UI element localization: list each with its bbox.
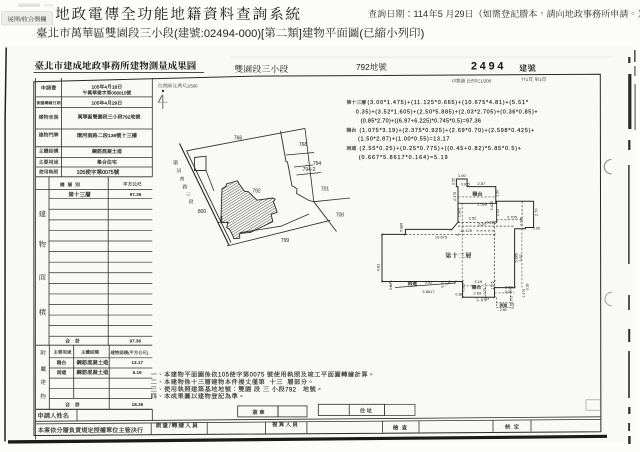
svg-text:800: 800 — [198, 209, 207, 215]
svg-text:1/500: 1/500 — [187, 83, 198, 88]
svg-text:792: 792 — [252, 189, 261, 195]
svg-text:2.55: 2.55 — [500, 308, 507, 312]
svg-text:0.925: 0.925 — [461, 183, 470, 187]
svg-text:2.705: 2.705 — [507, 215, 518, 220]
svg-text:4: 4 — [104, 101, 107, 106]
svg-text:0.38: 0.38 — [455, 292, 462, 296]
svg-text:5.52: 5.52 — [519, 254, 523, 261]
svg-text:97.36: 97.36 — [130, 192, 142, 197]
svg-text:0.65: 0.65 — [533, 227, 540, 231]
svg-text:18: 18 — [112, 84, 118, 89]
svg-text:(: ( — [174, 28, 178, 40]
svg-text:105: 105 — [77, 170, 86, 176]
svg-text:0.925: 0.925 — [462, 283, 466, 291]
svg-text:5: 5 — [438, 9, 443, 19]
svg-text:11.125: 11.125 — [460, 228, 473, 233]
svg-text:1.00: 1.00 — [458, 173, 467, 178]
svg-text:3.52: 3.52 — [469, 216, 478, 221]
svg-text:5.885: 5.885 — [400, 223, 404, 232]
svg-text:]: ] — [299, 28, 302, 40]
svg-text:1.075: 1.075 — [490, 281, 494, 289]
svg-text:1/200: 1/200 — [480, 79, 491, 84]
svg-text:2.70: 2.70 — [533, 208, 538, 216]
svg-text:18.36: 18.36 — [132, 402, 144, 407]
svg-text:5.85: 5.85 — [425, 280, 434, 285]
svg-text:105: 105 — [92, 84, 100, 89]
svg-text:5.19: 5.19 — [133, 370, 142, 375]
svg-text:2.87: 2.87 — [477, 181, 486, 186]
svg-text:6.225: 6.225 — [486, 219, 497, 224]
svg-text:(3.00*1.475)+(11.125*0.665)+(1: (3.00*1.475)+(11.125*0.665)+(10.675*4.81… — [368, 100, 529, 106]
svg-text:13.17: 13.17 — [131, 360, 143, 365]
svg-text::02494-000)[: :02494-000)[ — [201, 28, 265, 40]
svg-text:0.39: 0.39 — [526, 283, 530, 290]
svg-text:2.69: 2.69 — [473, 291, 482, 296]
svg-text:0.70: 0.70 — [483, 288, 487, 295]
svg-text:794: 794 — [313, 161, 322, 167]
svg-text:0.82: 0.82 — [389, 283, 393, 290]
svg-text:0.25: 0.25 — [511, 303, 515, 310]
svg-text:792: 792 — [123, 115, 131, 120]
svg-text:1.50: 1.50 — [495, 190, 499, 197]
svg-text:0075: 0075 — [250, 373, 265, 379]
svg-text:4: 4 — [104, 84, 107, 89]
svg-text:768: 768 — [299, 142, 308, 148]
svg-text:2.375: 2.375 — [453, 192, 457, 201]
svg-text:4.81: 4.81 — [376, 263, 381, 272]
svg-text:105: 105 — [218, 373, 230, 379]
svg-text:700: 700 — [336, 213, 345, 219]
svg-text:10.675: 10.675 — [435, 235, 448, 240]
svg-text:799: 799 — [281, 238, 290, 244]
svg-text:(0.667*5.8617*0.164)=5.19: (0.667*5.8617*0.164)=5.19 — [359, 155, 449, 161]
svg-text:(2.55*0.25)+(0.25*0.775)+((0.4: (2.55*0.25)+(0.25*0.775)+((0.45+0.82)*5.… — [360, 146, 522, 152]
svg-text:): ) — [421, 28, 425, 40]
svg-text:114: 114 — [414, 9, 429, 19]
svg-text:(0.85*2.70)+((6.97+6.225)*0.74: (0.85*2.70)+((6.97+6.225)*0.745*0.5)=97.… — [361, 119, 482, 125]
svg-text:0.35)+(3.52*1.605)+(2.50*5.885: 0.35)+(3.52*1.605)+(2.50*5.885)+(2.03*2.… — [356, 109, 538, 115]
svg-text:2494: 2494 — [471, 61, 506, 73]
svg-text:794-2: 794-2 — [303, 167, 316, 173]
svg-text:97.36: 97.36 — [130, 339, 142, 344]
svg-text:3.19: 3.19 — [474, 279, 483, 284]
svg-text:0.40: 0.40 — [441, 281, 445, 288]
svg-text:105: 105 — [92, 101, 100, 106]
svg-text:1.605: 1.605 — [457, 208, 461, 217]
svg-text:/: / — [169, 423, 172, 429]
svg-text:29: 29 — [112, 101, 118, 106]
svg-text:(1.50*2.87)+(1.00*0.55)=13.17: (1.50*2.87)+(1.00*0.55)=13.17 — [358, 137, 450, 143]
svg-text:0.35: 0.35 — [481, 297, 488, 301]
svg-text:0.55: 0.55 — [451, 178, 455, 185]
svg-text:136: 136 — [108, 133, 116, 139]
svg-text:2.03: 2.03 — [496, 209, 500, 216]
svg-text:(1.075*3.19)+(2.375*0.925)+(2.: (1.075*3.19)+(2.375*0.925)+(2.69*0.70)+(… — [360, 128, 536, 134]
svg-text:2.598: 2.598 — [477, 202, 488, 207]
svg-text:792: 792 — [356, 63, 370, 72]
svg-text:(: ( — [359, 28, 363, 40]
svg-text:008010: 008010 — [111, 90, 127, 95]
svg-text:0075: 0075 — [102, 170, 114, 176]
svg-text:0.745: 0.745 — [520, 217, 524, 226]
svg-text:792: 792 — [285, 387, 297, 393]
svg-text:3.00: 3.00 — [505, 289, 514, 294]
svg-text:0.425: 0.425 — [490, 201, 494, 210]
svg-text:5.8617: 5.8617 — [422, 289, 435, 294]
svg-text:/: / — [20, 16, 22, 23]
svg-text:766: 766 — [234, 136, 243, 142]
svg-text:701: 701 — [321, 187, 330, 193]
svg-text:29: 29 — [454, 9, 464, 19]
